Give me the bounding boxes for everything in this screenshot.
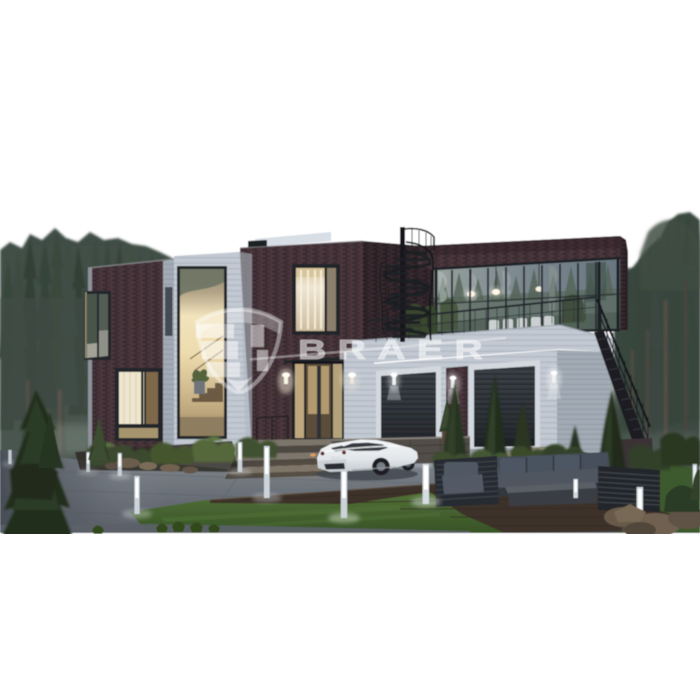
svg-text:BRAER: BRAER [298,334,494,365]
